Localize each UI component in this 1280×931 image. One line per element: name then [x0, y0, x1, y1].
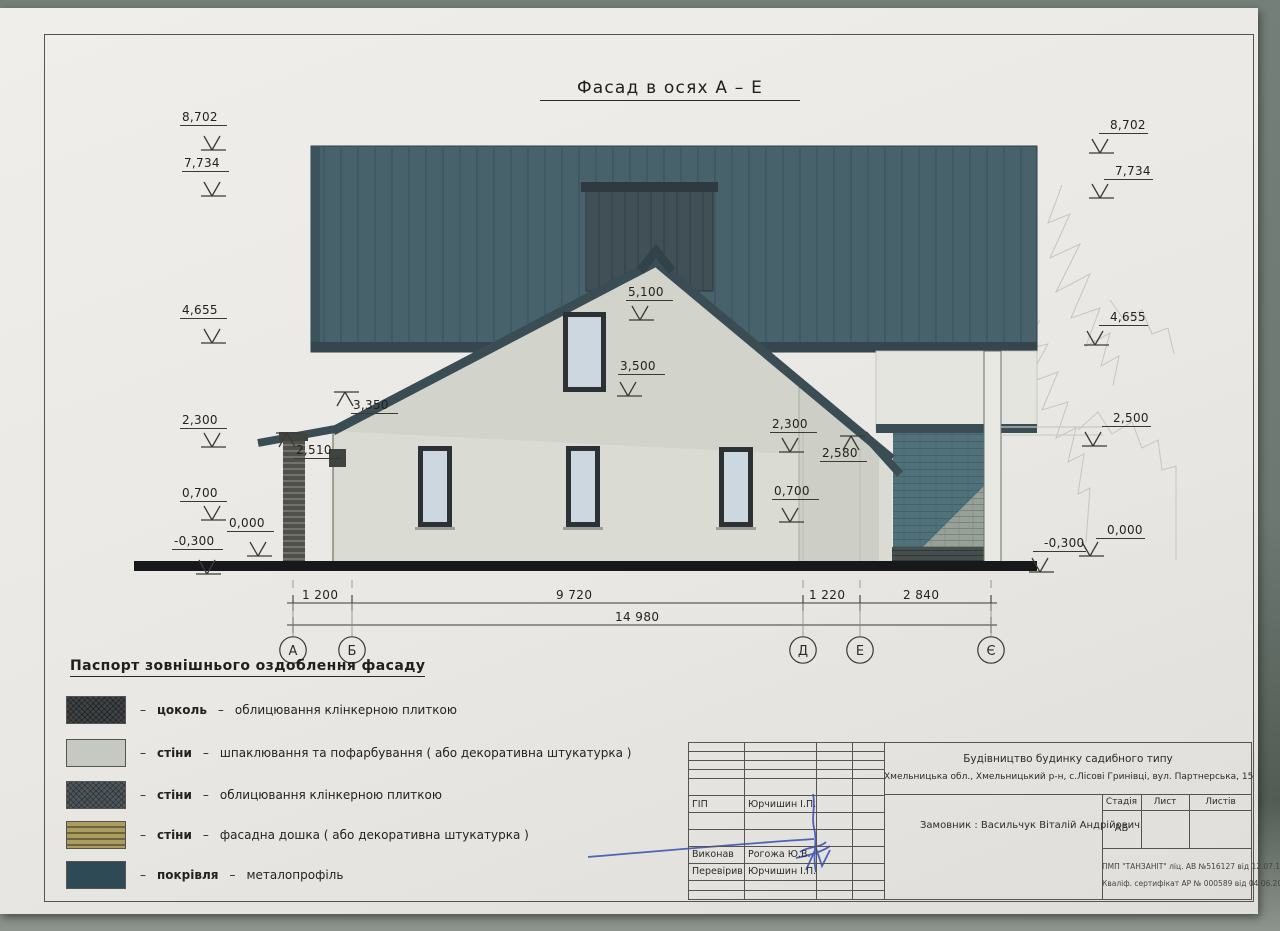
dim-gable-window: 3,500 [618, 360, 665, 375]
elev-right-7734: 7,734 [1104, 165, 1153, 180]
dim-porch-left: 2,510 [294, 444, 341, 459]
swatch-light-plaster [66, 739, 126, 767]
swatch-gray-clinker [66, 781, 126, 809]
legend-item-clinker: –стіни–облицювання клінкерною плиткою [66, 781, 442, 809]
legend-item-board: –стіни–фасадна дошка ( або декоративна ш… [66, 821, 529, 849]
elev-left-8702: 8,702 [180, 111, 227, 126]
legend-item-basement: –цоколь–облицювання клінкерною плиткою [66, 696, 457, 724]
legend-item-plaster: –стіни–шпаклювання та пофарбування ( або… [66, 739, 631, 767]
tree-sketch [1022, 185, 1176, 560]
sheets-col-header: Листів [1189, 797, 1252, 807]
elev-right-8702: 8,702 [1099, 119, 1148, 134]
carport-post [984, 351, 1001, 562]
axis-letter: Є [986, 644, 995, 659]
elev-left-7734: 7,734 [182, 157, 229, 172]
role-pereviryv-name: Юрчишин І.П. [748, 866, 816, 877]
dim-seg-2840: 2 840 [903, 588, 939, 602]
elev-left-m0300: -0,300 [172, 535, 223, 550]
elev-left-4655: 4,655 [180, 304, 227, 319]
swatch-metal-roof [66, 861, 126, 889]
elev-left-2300: 2,300 [180, 414, 227, 429]
axis-letter: Д [798, 644, 808, 659]
axis-letter: Е [856, 644, 864, 659]
swatch-facade-board [66, 821, 126, 849]
dim-sill-right: 0,700 [772, 485, 819, 500]
swatch-dark-clinker [66, 696, 126, 724]
project-line1: Будівництво будинку садибного типу [884, 753, 1252, 765]
window-left [415, 446, 455, 530]
elev-right-4655: 4,655 [1099, 311, 1148, 326]
dim-seg-9720: 9 720 [556, 588, 592, 602]
role-pereviryv: Перевірив [692, 866, 743, 877]
role-vykonav: Виконав [692, 849, 734, 860]
dim-total-14980: 14 980 [615, 610, 659, 624]
dim-eave-left: 3,350 [351, 399, 398, 414]
dim-seg-1200: 1 200 [302, 588, 338, 602]
dim-wall-right: 2,300 [770, 418, 817, 433]
dim-ridge: 5,100 [626, 286, 673, 301]
role-gip: ГІП [692, 799, 708, 810]
elev-right-0000: 0,000 [1096, 524, 1145, 539]
sheet-col-header: Лист [1141, 797, 1189, 807]
gable-window [563, 312, 606, 392]
legend-item-roof: –покрівля–металопрофіль [66, 861, 343, 889]
elev-left-0000: 0,000 [227, 517, 274, 532]
ground-line [134, 561, 1037, 571]
role-vykonav-name: Рогожа Ю.В. [748, 849, 811, 860]
window-right [716, 447, 756, 530]
elev-left-0700: 0,700 [180, 487, 227, 502]
photo-of-drawing: Фасад в осях А – Е [0, 0, 1280, 931]
dim-eave-right: 2,580 [820, 447, 867, 462]
elev-right-2500: 2,500 [1102, 412, 1151, 427]
stage-col-header: Стадія [1102, 797, 1141, 807]
role-gip-name: Юрчишин І.П. [748, 799, 816, 810]
license-line1: ПМП "ТАНЗАНІТ" ліц. АВ №516127 від 12.07… [1102, 862, 1252, 871]
license-line2: Кваліф. сертифікат АР № 000589 від 04.06… [1102, 879, 1252, 888]
axis-letter: А [289, 644, 298, 659]
legend: Паспорт зовнішнього оздоблення фасаду –ц… [66, 658, 706, 908]
project-line2: Хмельницька обл., Хмельницький р-н, с.Лі… [884, 772, 1252, 782]
axis-letter: Б [348, 644, 357, 659]
dim-seg-1220: 1 220 [809, 588, 845, 602]
elev-right-m0300: -0,300 [1033, 537, 1086, 552]
legend-heading: Паспорт зовнішнього оздоблення фасаду [70, 658, 425, 677]
stage-value: АБ [1102, 823, 1141, 834]
window-center [563, 446, 603, 530]
